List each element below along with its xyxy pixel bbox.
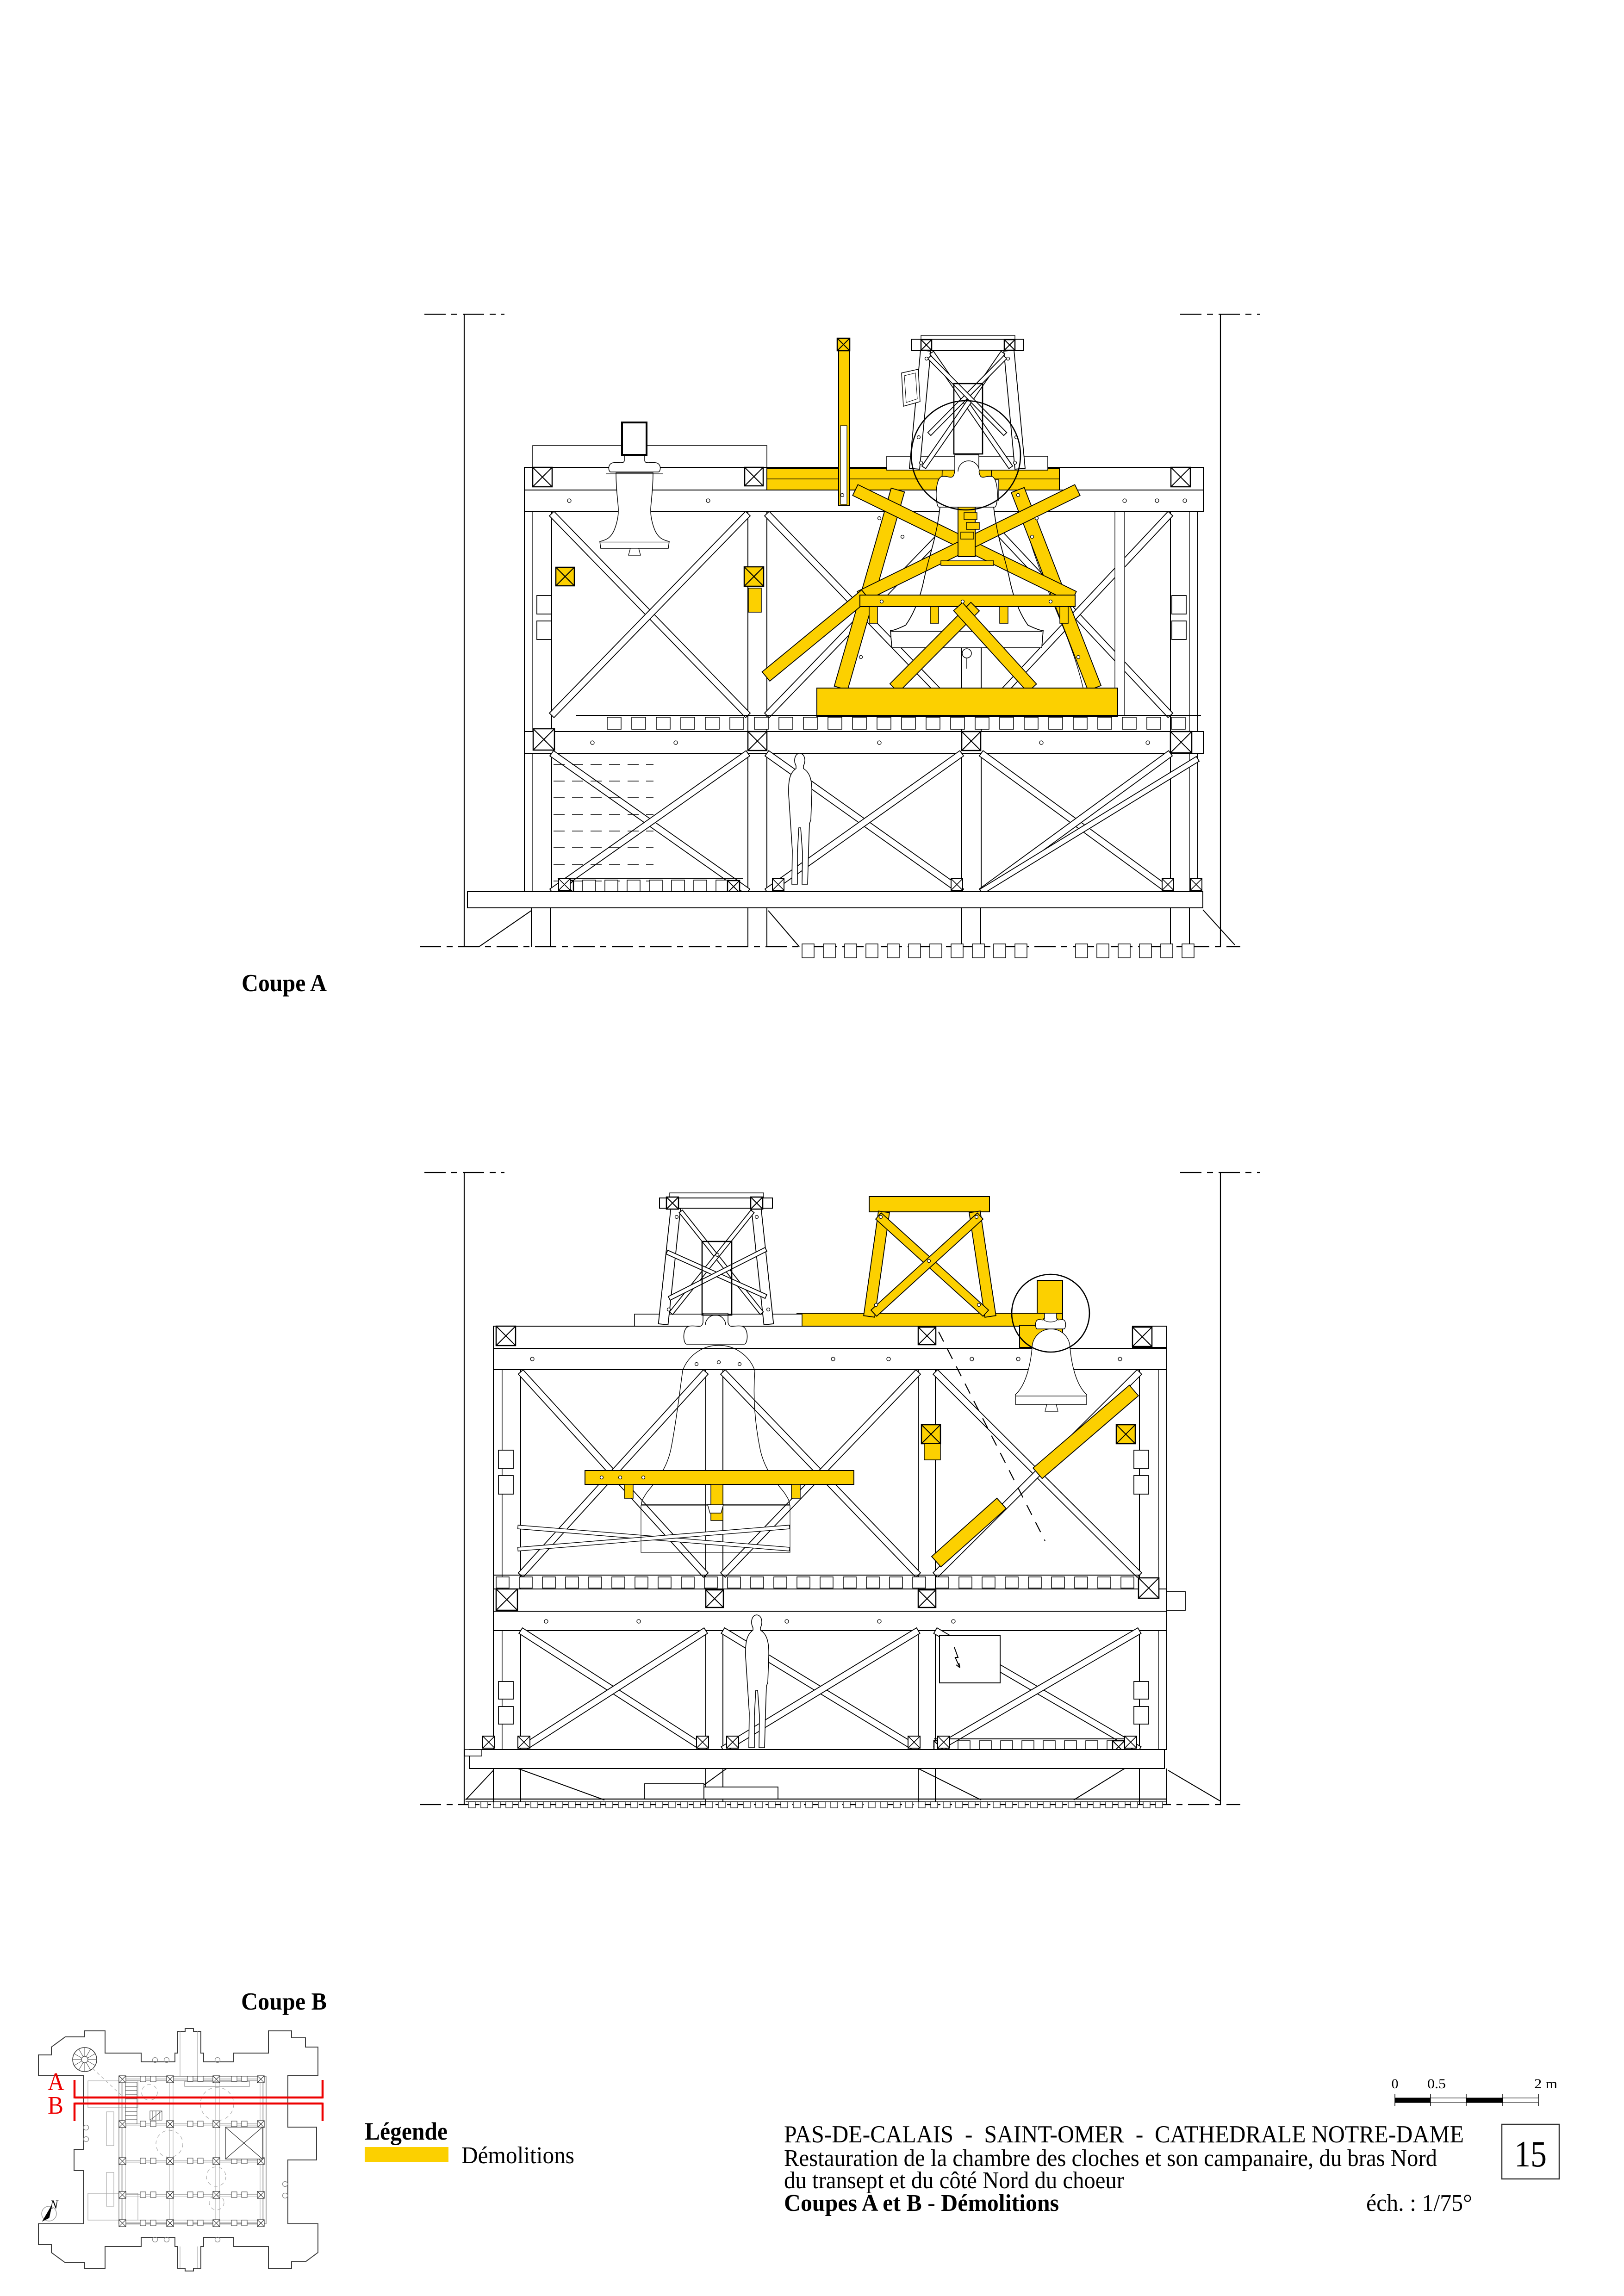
svg-text:N: N bbox=[50, 2198, 59, 2211]
svg-text:Coupe B: Coupe B bbox=[241, 1988, 327, 2015]
svg-text:B: B bbox=[48, 2091, 63, 2119]
svg-text:PAS-DE-CALAIS - SAINT-OMER: PAS-DE-CALAIS - SAINT-OMER - CATHEDRALE … bbox=[784, 2121, 1464, 2148]
svg-text:Légende: Légende bbox=[365, 2117, 448, 2145]
svg-text:Coupes A et B - Démolitions: Coupes A et B - Démolitions bbox=[784, 2190, 1059, 2216]
svg-text:15: 15 bbox=[1514, 2134, 1547, 2175]
svg-text:2 m: 2 m bbox=[1534, 2076, 1557, 2091]
svg-text:0.5: 0.5 bbox=[1427, 2076, 1446, 2091]
svg-text:éch. : 1/75°: éch. : 1/75° bbox=[1366, 2190, 1472, 2216]
svg-text:0: 0 bbox=[1392, 2076, 1399, 2091]
svg-text:Coupe A: Coupe A bbox=[242, 970, 327, 997]
svg-text:Démolitions: Démolitions bbox=[461, 2142, 574, 2169]
